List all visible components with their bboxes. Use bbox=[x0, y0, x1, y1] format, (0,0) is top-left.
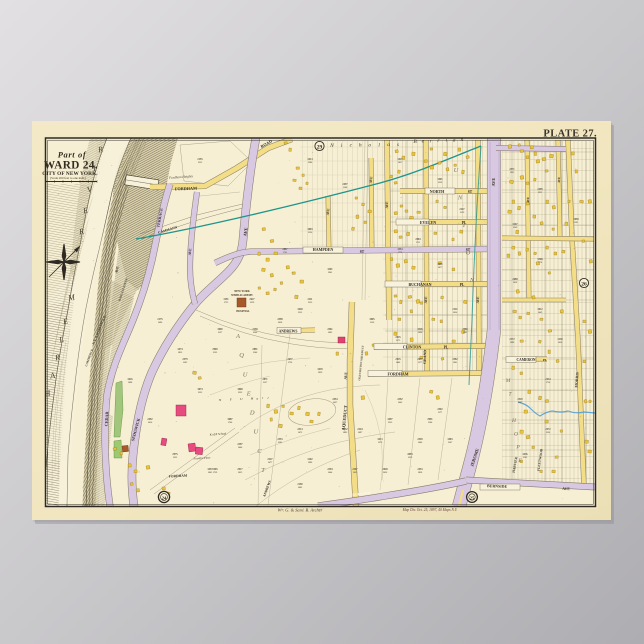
svg-text:PL: PL bbox=[460, 283, 465, 287]
svg-text:FORDHAM: FORDHAM bbox=[387, 372, 408, 377]
svg-text:AVE: AVE bbox=[557, 177, 561, 183]
svg-text:2258: 2258 bbox=[252, 328, 258, 331]
svg-text:AVE: AVE bbox=[344, 371, 349, 379]
svg-text:o: o bbox=[368, 142, 371, 148]
svg-text:2465: 2465 bbox=[212, 468, 218, 471]
svg-text:2025: 2025 bbox=[395, 336, 401, 339]
svg-text:1472: 1472 bbox=[298, 432, 302, 434]
svg-text:C: C bbox=[257, 448, 262, 455]
svg-text:BURNSIDE: BURNSIDE bbox=[487, 484, 508, 489]
svg-text:3102: 3102 bbox=[307, 458, 313, 461]
svg-text:1941: 1941 bbox=[328, 272, 332, 274]
svg-text:AVE: AVE bbox=[424, 296, 428, 304]
svg-text:AVE: AVE bbox=[326, 208, 331, 216]
svg-text:3068: 3068 bbox=[237, 388, 243, 391]
svg-text:3301: 3301 bbox=[327, 268, 333, 271]
svg-text:1711: 1711 bbox=[416, 242, 420, 244]
svg-text:2394: 2394 bbox=[327, 468, 333, 471]
svg-text:2453: 2453 bbox=[417, 468, 423, 471]
svg-text:2561: 2561 bbox=[327, 328, 333, 331]
svg-text:AVE: AVE bbox=[369, 176, 374, 184]
svg-text:2212: 2212 bbox=[198, 162, 202, 164]
svg-text:3368: 3368 bbox=[537, 258, 543, 261]
svg-text:CAMERON: CAMERON bbox=[517, 358, 536, 362]
svg-text:2582: 2582 bbox=[452, 358, 458, 361]
svg-text:O: O bbox=[466, 250, 471, 257]
svg-text:2261: 2261 bbox=[278, 442, 282, 444]
svg-text:2688: 2688 bbox=[512, 278, 518, 281]
svg-text:2175: 2175 bbox=[157, 318, 163, 321]
svg-text:NORTH: NORTH bbox=[430, 189, 445, 194]
svg-text:AVE: AVE bbox=[385, 201, 389, 209]
svg-text:O: O bbox=[514, 431, 518, 437]
svg-text:2917: 2917 bbox=[237, 468, 243, 471]
svg-text:3091: 3091 bbox=[437, 263, 443, 266]
svg-text:2155: 2155 bbox=[197, 158, 203, 161]
svg-text:2141: 2141 bbox=[452, 308, 458, 311]
svg-text:WEBB ACADEMY: WEBB ACADEMY bbox=[231, 294, 253, 297]
svg-text:EVELYN: EVELYN bbox=[420, 220, 436, 225]
svg-text:H: H bbox=[250, 397, 254, 401]
svg-text:GRAND: GRAND bbox=[423, 350, 427, 364]
svg-text:WARD 24.: WARD 24. bbox=[44, 160, 98, 172]
svg-text:2572: 2572 bbox=[545, 428, 551, 431]
svg-text:CLINTON: CLINTON bbox=[403, 345, 422, 350]
svg-text:Part of: Part of bbox=[58, 150, 87, 160]
svg-text:2571: 2571 bbox=[509, 168, 515, 171]
svg-text:2553: 2553 bbox=[277, 438, 283, 441]
svg-text:2247: 2247 bbox=[267, 458, 273, 461]
svg-text:2554: 2554 bbox=[332, 398, 338, 401]
svg-text:1832: 1832 bbox=[178, 352, 182, 354]
svg-text:3087: 3087 bbox=[227, 418, 233, 421]
svg-text:3414: 3414 bbox=[307, 158, 313, 161]
svg-text:3439: 3439 bbox=[317, 368, 323, 371]
svg-text:N: N bbox=[329, 143, 334, 149]
svg-text:N: N bbox=[469, 277, 475, 284]
svg-text:2190: 2190 bbox=[297, 483, 303, 486]
svg-text:Q: Q bbox=[239, 352, 244, 359]
svg-text:1741: 1741 bbox=[283, 252, 287, 254]
svg-text:l: l bbox=[262, 396, 263, 400]
svg-text:2975: 2975 bbox=[172, 453, 178, 456]
svg-text:2598: 2598 bbox=[277, 318, 283, 321]
svg-text:2111: 2111 bbox=[308, 298, 314, 301]
svg-text:E: E bbox=[517, 458, 522, 464]
svg-text:(Scale 200 feet to one inch.): (Scale 200 feet to one inch.) bbox=[50, 176, 86, 180]
svg-text:25: 25 bbox=[470, 496, 475, 501]
svg-text:T: T bbox=[261, 467, 265, 474]
svg-text:3401: 3401 bbox=[437, 178, 443, 181]
svg-text:2677: 2677 bbox=[287, 358, 293, 361]
svg-text:1951: 1951 bbox=[538, 192, 542, 194]
svg-text:A: A bbox=[235, 333, 240, 340]
svg-text:2222: 2222 bbox=[198, 392, 202, 394]
svg-text:2969: 2969 bbox=[212, 348, 218, 351]
svg-text:3167: 3167 bbox=[512, 223, 518, 226]
svg-text:2028: 2028 bbox=[382, 468, 388, 471]
svg-text:1602: 1602 bbox=[298, 487, 302, 489]
svg-text:Wᵐ. G. & Samˡ. B. Archer: Wᵐ. G. & Samˡ. B. Archer bbox=[278, 508, 323, 513]
svg-text:1892: 1892 bbox=[343, 432, 347, 434]
svg-text:3427: 3427 bbox=[397, 158, 403, 161]
svg-text:3474: 3474 bbox=[177, 348, 183, 351]
svg-text:2697: 2697 bbox=[417, 358, 423, 361]
svg-text:3448: 3448 bbox=[297, 308, 303, 311]
svg-text:2952: 2952 bbox=[342, 428, 348, 431]
svg-text:2247: 2247 bbox=[459, 208, 465, 211]
svg-text:PL: PL bbox=[543, 358, 547, 362]
svg-text:3326: 3326 bbox=[417, 328, 423, 331]
svg-text:2871: 2871 bbox=[262, 378, 268, 381]
svg-text:2322: 2322 bbox=[173, 457, 177, 459]
svg-text:h: h bbox=[359, 143, 362, 149]
svg-text:ANDREWS: ANDREWS bbox=[279, 330, 298, 334]
svg-text:P: P bbox=[515, 445, 520, 451]
svg-text:3074: 3074 bbox=[197, 388, 203, 391]
svg-text:1961: 1961 bbox=[453, 362, 457, 364]
svg-text:3354: 3354 bbox=[397, 248, 403, 251]
svg-text:2549: 2549 bbox=[417, 438, 423, 441]
svg-text:3138: 3138 bbox=[557, 338, 563, 341]
svg-text:24: 24 bbox=[162, 496, 167, 501]
svg-text:2991: 2991 bbox=[427, 418, 433, 421]
svg-text:ST: ST bbox=[360, 250, 365, 254]
svg-text:s: s bbox=[397, 142, 399, 148]
svg-text:BUCHANAN: BUCHANAN bbox=[408, 282, 431, 287]
svg-text:3483: 3483 bbox=[447, 438, 453, 441]
svg-text:l: l bbox=[268, 396, 269, 400]
svg-text:D: D bbox=[249, 410, 255, 417]
svg-text:3093: 3093 bbox=[407, 453, 413, 456]
svg-text:2392: 2392 bbox=[397, 398, 403, 401]
svg-text:2084: 2084 bbox=[415, 238, 421, 241]
svg-text:2497: 2497 bbox=[342, 183, 348, 186]
svg-text:AVE: AVE bbox=[476, 296, 480, 304]
svg-text:3413: 3413 bbox=[377, 438, 383, 441]
svg-text:3000: 3000 bbox=[217, 328, 223, 331]
svg-text:2514: 2514 bbox=[297, 428, 303, 431]
svg-text:FORDHAM: FORDHAM bbox=[175, 186, 197, 192]
svg-text:29: 29 bbox=[317, 144, 323, 150]
svg-text:1391: 1391 bbox=[574, 222, 578, 224]
svg-text:2529: 2529 bbox=[517, 398, 523, 401]
svg-text:2367: 2367 bbox=[352, 468, 358, 471]
svg-text:2434: 2434 bbox=[545, 378, 551, 381]
svg-text:26: 26 bbox=[581, 281, 587, 287]
svg-text:2502: 2502 bbox=[437, 408, 443, 411]
svg-text:3058: 3058 bbox=[573, 218, 579, 221]
svg-text:a: a bbox=[387, 142, 390, 148]
svg-text:N: N bbox=[457, 195, 463, 202]
svg-text:2579: 2579 bbox=[182, 358, 188, 361]
svg-text:AVE: AVE bbox=[562, 487, 570, 491]
svg-text:3191: 3191 bbox=[223, 298, 229, 301]
svg-text:AVE: AVE bbox=[491, 178, 496, 187]
svg-text:2980: 2980 bbox=[462, 328, 468, 331]
svg-text:3416: 3416 bbox=[127, 378, 133, 381]
svg-text:AVE: AVE bbox=[526, 197, 530, 203]
svg-text:2397: 2397 bbox=[237, 443, 243, 446]
svg-text:2492: 2492 bbox=[147, 418, 153, 421]
svg-text:3436: 3436 bbox=[522, 453, 528, 456]
svg-text:ST: ST bbox=[468, 190, 473, 194]
svg-text:3012: 3012 bbox=[537, 308, 543, 311]
svg-text:2025: 2025 bbox=[395, 358, 401, 361]
svg-text:a: a bbox=[256, 396, 258, 400]
svg-text:3005: 3005 bbox=[369, 318, 375, 321]
svg-text:2332: 2332 bbox=[238, 392, 242, 394]
svg-text:2891: 2891 bbox=[252, 348, 258, 351]
svg-text:2244: 2244 bbox=[357, 428, 363, 431]
svg-text:2499: 2499 bbox=[537, 188, 543, 191]
svg-text:3003: 3003 bbox=[307, 228, 313, 231]
svg-text:M: M bbox=[505, 378, 511, 384]
svg-text:HAMPDEN: HAMPDEN bbox=[313, 247, 334, 252]
svg-text:PLATE 27.: PLATE 27. bbox=[543, 129, 597, 140]
svg-text:NEW YORK: NEW YORK bbox=[234, 290, 250, 293]
svg-text:1902: 1902 bbox=[463, 332, 467, 334]
svg-text:AVE: AVE bbox=[188, 248, 193, 256]
svg-text:2627: 2627 bbox=[249, 298, 255, 301]
svg-text:HOSPITAL: HOSPITAL bbox=[236, 310, 249, 313]
svg-text:2372: 2372 bbox=[509, 338, 515, 341]
svg-text:PL: PL bbox=[444, 346, 449, 350]
svg-text:2887: 2887 bbox=[282, 248, 288, 251]
svg-text:3497: 3497 bbox=[387, 418, 393, 421]
